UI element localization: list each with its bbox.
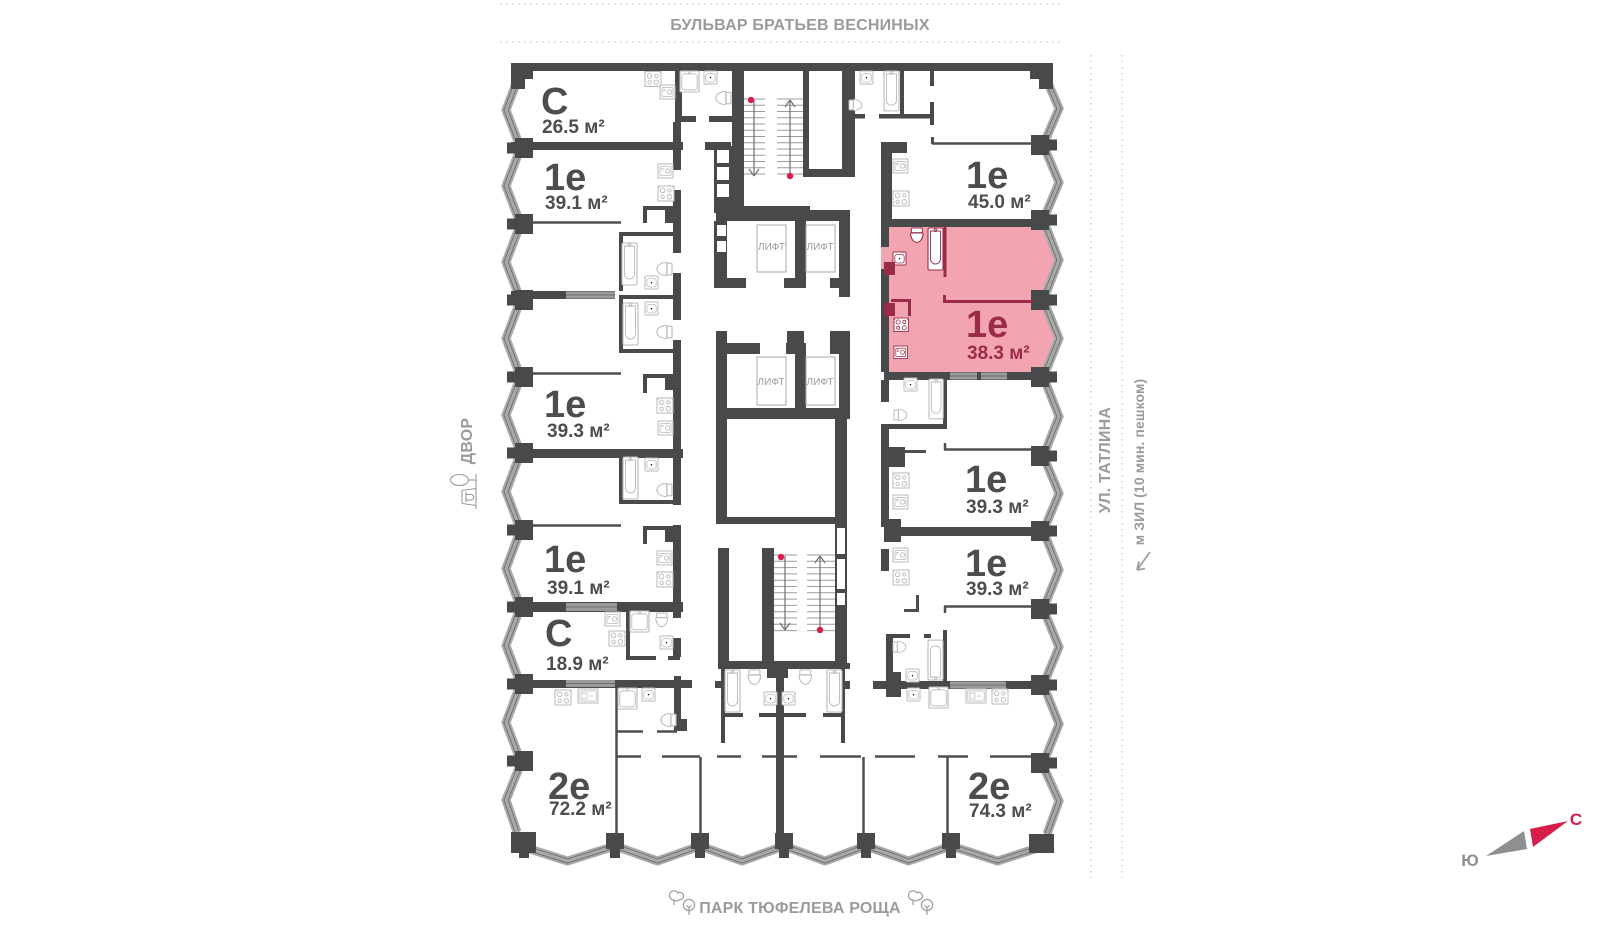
svg-text:ЛИФТ: ЛИФТ: [758, 242, 785, 253]
svg-text:1е: 1е: [965, 459, 1007, 501]
svg-text:1е: 1е: [966, 304, 1008, 346]
svg-text:УЛ. ТАТЛИНА: УЛ. ТАТЛИНА: [1097, 407, 1114, 514]
svg-text:45.0 м²: 45.0 м²: [968, 192, 1031, 213]
svg-text:72.2 м²: 72.2 м²: [549, 799, 612, 820]
svg-text:ЛИФТ: ЛИФТ: [758, 377, 785, 388]
svg-text:39.1 м²: 39.1 м²: [547, 578, 610, 599]
svg-text:ЛИФТ: ЛИФТ: [807, 377, 834, 388]
svg-text:26.5 м²: 26.5 м²: [542, 117, 605, 138]
svg-text:ПАРК ТЮФЕЛЕВА РОЩА: ПАРК ТЮФЕЛЕВА РОЩА: [699, 900, 901, 917]
svg-text:39.3 м²: 39.3 м²: [966, 579, 1029, 600]
svg-text:ДВОР: ДВОР: [459, 418, 476, 465]
svg-text:С: С: [1570, 810, 1582, 829]
svg-text:ЛИФТ: ЛИФТ: [807, 242, 834, 253]
svg-text:Ю: Ю: [1461, 851, 1479, 870]
svg-text:С: С: [545, 613, 572, 655]
svg-text:1е: 1е: [544, 539, 586, 581]
svg-text:39.3 м²: 39.3 м²: [966, 497, 1029, 518]
svg-text:18.9 м²: 18.9 м²: [546, 654, 609, 675]
svg-text:1е: 1е: [544, 384, 586, 426]
svg-text:м ЗИЛ (10 мин. пешком): м ЗИЛ (10 мин. пешком): [1131, 379, 1147, 545]
svg-text:39.1 м²: 39.1 м²: [545, 193, 608, 214]
svg-text:1е: 1е: [966, 155, 1008, 197]
svg-text:39.3 м²: 39.3 м²: [547, 421, 610, 442]
svg-text:38.3 м²: 38.3 м²: [967, 343, 1030, 364]
svg-text:74.3 м²: 74.3 м²: [969, 801, 1032, 822]
svg-text:БУЛЬВАР БРАТЬЕВ ВЕСНИНЫХ: БУЛЬВАР БРАТЬЕВ ВЕСНИНЫХ: [670, 17, 930, 34]
